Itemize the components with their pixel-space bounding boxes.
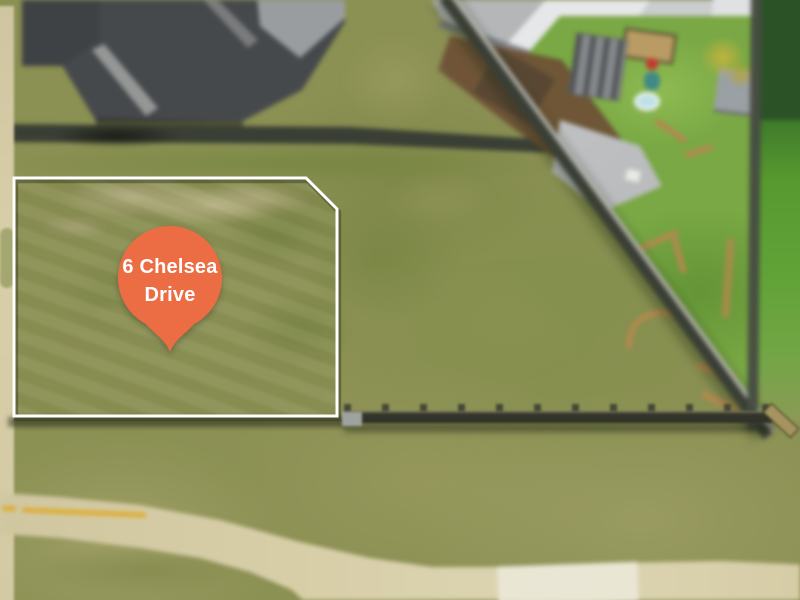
aerial-listing-photo: 6 Chelsea Drive	[0, 0, 800, 600]
location-pin-label: 6 Chelsea Drive	[114, 256, 226, 306]
pin-label-line1: 6 Chelsea	[114, 256, 226, 278]
road-marking-yellow-1	[2, 506, 16, 511]
road-bright-patch	[497, 562, 638, 600]
pin-label-line2: Drive	[114, 284, 226, 306]
